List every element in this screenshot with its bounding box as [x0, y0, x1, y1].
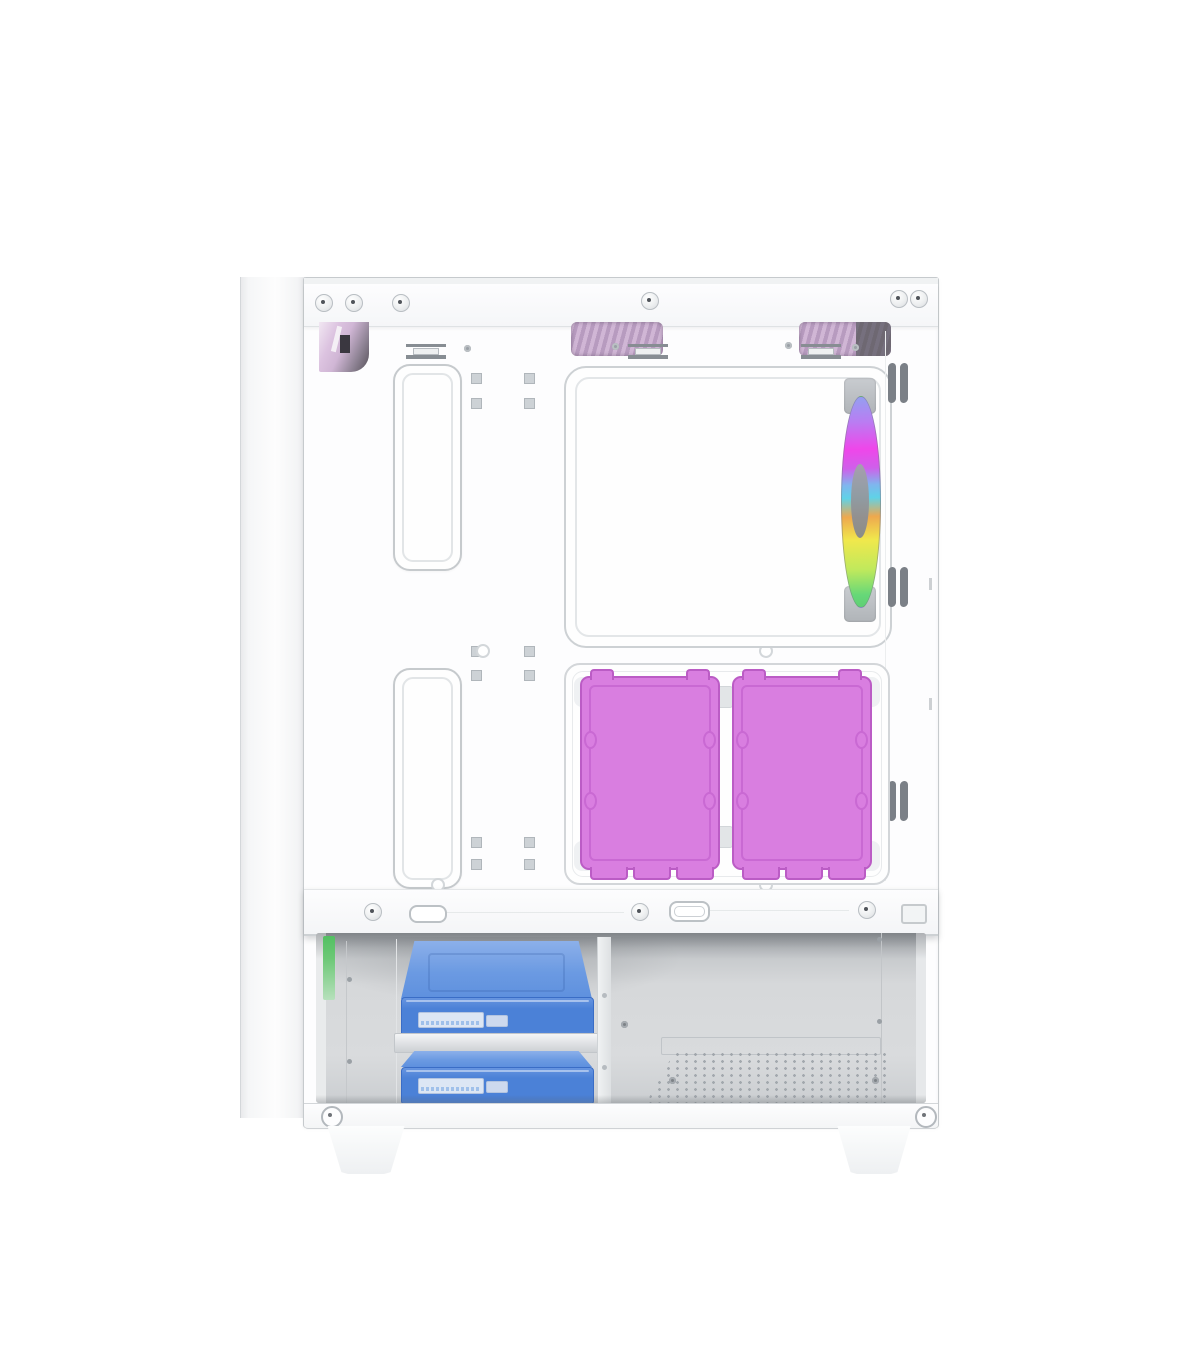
ssd-mount-tab — [590, 867, 628, 880]
ssd-mount-ear — [590, 669, 614, 680]
standoff-hole — [476, 644, 490, 658]
ssd-mount-ear — [838, 669, 862, 680]
tie-point — [471, 398, 482, 409]
hdd-cage-right-wall — [597, 937, 611, 1103]
panel-seam — [346, 941, 347, 1103]
ssd-notch — [855, 731, 868, 749]
shroud-slot — [409, 905, 447, 923]
cable-tie-bracket — [628, 344, 668, 359]
bottom-frame-rail — [304, 1103, 938, 1129]
front-io-connector — [340, 335, 350, 353]
rivet — [877, 937, 882, 942]
cable-tie-bracket — [406, 344, 446, 359]
psu-shroud — [304, 889, 938, 936]
rivet — [347, 977, 352, 982]
rear-vent-slot — [900, 781, 908, 822]
ssd-mount-ear — [686, 669, 710, 680]
pc-case-body — [303, 277, 939, 1128]
ssd-mount-tab — [676, 867, 714, 880]
rivet — [347, 1059, 352, 1064]
ssd-mount-tab — [828, 867, 866, 880]
ssd-mount-tab — [742, 867, 780, 880]
shroud-screw — [364, 903, 382, 921]
shroud-handle — [669, 901, 710, 922]
cage-wall-hole — [602, 1065, 607, 1070]
ssd-notch — [584, 731, 597, 749]
screw — [392, 294, 410, 312]
cable-tie-bracket — [801, 344, 841, 359]
ssd-mount-tray — [564, 663, 890, 885]
floor-shadow — [316, 1095, 926, 1103]
shroud-seam — [709, 910, 849, 911]
shroud-screw — [631, 903, 649, 921]
tray-screw — [785, 342, 792, 349]
ssd-mount-tab — [633, 867, 671, 880]
rivet — [877, 1019, 882, 1024]
cable-grommet-lower — [393, 668, 462, 889]
hdd-bottom-drive-topface — [401, 1051, 592, 1067]
rear-vent-slot — [900, 363, 908, 404]
rear-vent-slot — [888, 363, 896, 404]
rear-vent-slot — [900, 567, 908, 608]
front-io-pcb — [323, 936, 335, 1000]
ssd-left — [580, 676, 720, 870]
floor-screw — [872, 1077, 879, 1084]
tie-point — [524, 859, 535, 870]
tie-point — [471, 837, 482, 848]
ssd-mount-tab — [785, 867, 823, 880]
ssd-notch — [736, 731, 749, 749]
rear-edge-latch — [929, 578, 932, 590]
front-panel-edge — [240, 277, 305, 1118]
sata-connector — [418, 1012, 484, 1028]
screw — [641, 292, 659, 310]
tie-point — [524, 373, 535, 384]
tie-point — [524, 670, 535, 681]
ssd-mount-ear — [742, 669, 766, 680]
sata-pins — [421, 1021, 481, 1025]
screw — [345, 294, 363, 312]
rear-edge-latch — [929, 698, 932, 710]
hdd-top-drive-topface — [401, 941, 592, 999]
ssd-notch — [703, 731, 716, 749]
floor-screw — [669, 1077, 676, 1084]
hdd-lid-recess — [428, 953, 566, 992]
case-foot-left — [325, 1126, 407, 1174]
top-vent-corner-cutout — [319, 322, 369, 372]
ssd-right — [732, 676, 872, 870]
tie-point — [524, 646, 535, 657]
sata-power-stub — [486, 1081, 508, 1093]
cage-wall-hole — [602, 993, 607, 998]
product-photo-pc-case — [0, 0, 1200, 1372]
floor-screw — [621, 1021, 628, 1028]
case-foot-right — [835, 1126, 913, 1174]
tie-point — [524, 398, 535, 409]
tie-point — [471, 373, 482, 384]
rgb-fan-hub — [851, 464, 869, 538]
thumbscrew — [915, 1106, 937, 1128]
screw — [315, 294, 333, 312]
screw — [890, 290, 908, 308]
cable-grommet-upper — [393, 364, 462, 571]
shroud-rear-slot — [901, 904, 927, 924]
tray-screw — [612, 343, 619, 350]
ssd-notch — [703, 792, 716, 810]
shroud-screw — [858, 901, 876, 919]
screw — [910, 290, 928, 308]
tie-point — [524, 837, 535, 848]
ssd-notch — [736, 792, 749, 810]
tie-point — [471, 859, 482, 870]
sata-power-stub — [486, 1015, 508, 1027]
sata-pins — [421, 1087, 481, 1091]
hdd-cage-left-wall — [396, 939, 397, 1103]
hdd-highlight — [406, 1070, 589, 1072]
tie-point — [471, 670, 482, 681]
tray-screw — [852, 344, 859, 351]
ssd-notch — [855, 792, 868, 810]
bottom-compartment — [316, 933, 926, 1103]
shroud-seam — [444, 912, 624, 913]
rear-vent-slot — [888, 567, 896, 608]
hdd-highlight — [406, 1000, 589, 1002]
ssd-notch — [584, 792, 597, 810]
hdd-cage-rail — [394, 1033, 606, 1053]
hdd-top-drive-front — [401, 997, 594, 1037]
thumbscrew — [321, 1106, 343, 1128]
sata-connector — [418, 1078, 484, 1094]
tray-screw — [464, 345, 471, 352]
